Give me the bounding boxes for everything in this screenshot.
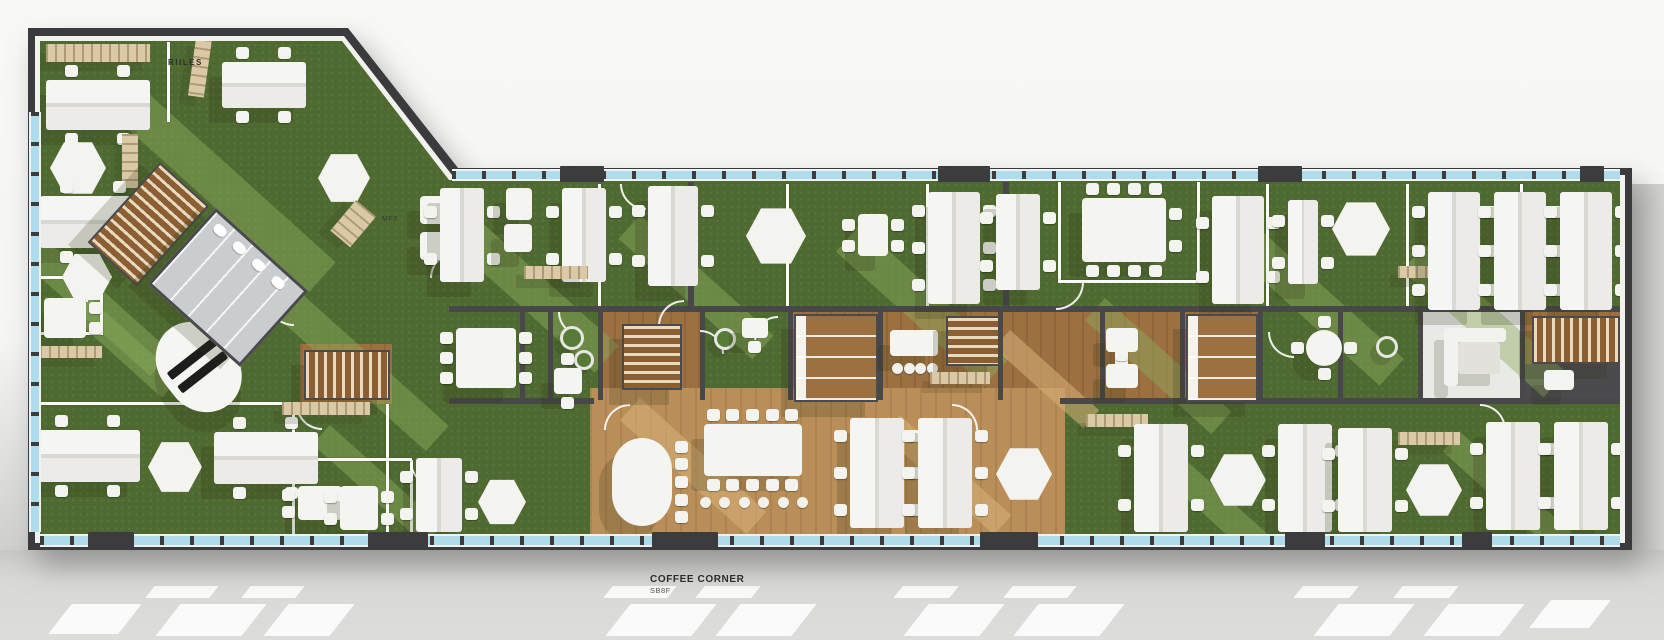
- side-table: [554, 368, 582, 394]
- chair: [983, 279, 996, 291]
- conference-table: [340, 486, 378, 530]
- chair: [675, 494, 688, 506]
- phone-booths: [1186, 314, 1258, 402]
- chair: [675, 458, 688, 470]
- chair: [1128, 183, 1141, 195]
- chair: [726, 409, 739, 421]
- chair: [233, 417, 246, 429]
- chair: [891, 240, 904, 252]
- chair: [487, 253, 500, 265]
- chair: [609, 206, 622, 218]
- storage-shelf: [122, 134, 138, 188]
- entry-door: [938, 166, 990, 182]
- chair: [1272, 257, 1285, 269]
- chair: [785, 479, 798, 491]
- desk-bench: [416, 458, 462, 532]
- toilet: [211, 222, 228, 239]
- chair: [1478, 284, 1491, 296]
- stool: [739, 497, 750, 508]
- chair: [1191, 445, 1204, 457]
- desk-bench: [648, 186, 698, 286]
- chair: [1149, 183, 1162, 195]
- desk-bench: [214, 432, 318, 484]
- chair: [746, 409, 759, 421]
- desk-bench: [1134, 424, 1188, 532]
- staircase: [622, 324, 682, 390]
- coffee-corner-title: COFFEE CORNER: [650, 574, 744, 585]
- chair: [1086, 183, 1099, 195]
- chair: [748, 341, 761, 353]
- stool: [892, 363, 903, 374]
- entry-door: [980, 532, 1038, 548]
- storage-shelf: [524, 266, 588, 279]
- chair: [55, 485, 68, 497]
- entry-door: [368, 532, 428, 548]
- chair: [1470, 443, 1483, 455]
- plant: [560, 326, 584, 350]
- chair: [912, 279, 925, 291]
- chair: [1318, 316, 1331, 328]
- oval-table: [612, 438, 672, 526]
- conference-table: [704, 424, 802, 476]
- chair: [1412, 284, 1425, 296]
- partition-wall: [1258, 310, 1263, 400]
- phone-booths: [794, 314, 878, 402]
- partition-wall: [548, 310, 553, 400]
- chair: [675, 441, 688, 453]
- round-table: [1306, 330, 1342, 366]
- staircase: [946, 316, 1000, 366]
- sofa-back: [1444, 328, 1458, 386]
- chair: [1412, 206, 1425, 218]
- entry-door: [560, 166, 604, 182]
- chair: [1538, 497, 1551, 509]
- chair: [233, 487, 246, 499]
- chair: [1478, 206, 1491, 218]
- desk-bench: [1494, 192, 1546, 310]
- chair: [902, 467, 915, 479]
- chair: [89, 322, 102, 334]
- chair: [1169, 240, 1182, 252]
- chair: [519, 332, 532, 344]
- chair: [1115, 349, 1128, 361]
- chair: [1470, 497, 1483, 509]
- chair: [1321, 257, 1334, 269]
- desk-bench: [46, 80, 150, 130]
- chair: [282, 506, 295, 518]
- chair: [983, 242, 996, 254]
- entry-door: [1462, 532, 1492, 548]
- chair: [675, 476, 688, 488]
- toilet: [269, 274, 286, 291]
- desk-bench: [1212, 196, 1264, 304]
- chair: [1191, 499, 1204, 511]
- desk-bench: [222, 62, 306, 108]
- chair: [285, 417, 298, 429]
- chair: [912, 242, 925, 254]
- conference-table: [1544, 370, 1574, 390]
- partition-wall: [1418, 310, 1423, 400]
- chair: [236, 47, 249, 59]
- chair: [561, 397, 574, 409]
- sofa-seat: [1458, 342, 1500, 374]
- chair: [1196, 271, 1209, 283]
- coffee-corner-label: COFFEE CORNER SB8F: [650, 574, 744, 595]
- desk-bench: [928, 192, 980, 304]
- side-table: [742, 318, 768, 338]
- room-label-b: MF3: [382, 216, 398, 223]
- chair: [1544, 245, 1557, 257]
- side-table: [506, 188, 532, 220]
- chair: [1107, 265, 1120, 277]
- chair: [561, 353, 574, 365]
- chair: [980, 212, 993, 224]
- stool: [719, 497, 730, 508]
- side-table: [44, 298, 86, 338]
- chair: [487, 206, 500, 218]
- chair: [278, 111, 291, 123]
- chair: [465, 471, 478, 483]
- chair: [746, 479, 759, 491]
- chair: [1538, 443, 1551, 455]
- desk-bench: [996, 194, 1040, 290]
- staircase: [304, 350, 390, 400]
- partition-wall: [700, 310, 705, 400]
- chair: [842, 240, 855, 252]
- conference-table: [1082, 198, 1166, 262]
- chair: [1344, 342, 1357, 354]
- entry-door: [1285, 532, 1325, 548]
- building: RIILES MF3: [0, 0, 1664, 640]
- coffee-corner-subtitle: SB8F: [650, 586, 744, 595]
- chair: [381, 491, 394, 503]
- chair: [1196, 217, 1209, 229]
- chair: [546, 206, 559, 218]
- storage-shelf: [930, 372, 990, 384]
- chair: [766, 409, 779, 421]
- chair: [1544, 284, 1557, 296]
- desk-bench: [1554, 422, 1608, 530]
- partition-wall: [1406, 184, 1409, 308]
- chair: [1118, 499, 1131, 511]
- chair: [632, 205, 645, 217]
- chair: [107, 485, 120, 497]
- side-table: [858, 214, 888, 256]
- stool: [915, 363, 926, 374]
- desk-bench: [440, 188, 484, 282]
- chair: [440, 372, 453, 384]
- room-label-a: RIILES: [168, 58, 203, 67]
- desk-bench: [850, 418, 904, 528]
- partition-wall: [1197, 182, 1200, 282]
- chair: [546, 253, 559, 265]
- chair: [1272, 215, 1285, 227]
- plant: [574, 350, 594, 370]
- side-table: [504, 224, 532, 252]
- chair: [1395, 448, 1408, 460]
- chair: [975, 467, 988, 479]
- entry-door: [1580, 166, 1604, 182]
- window-strip: [29, 112, 41, 532]
- desk-bench: [1278, 424, 1332, 532]
- chair: [1395, 500, 1408, 512]
- chair: [1043, 212, 1056, 224]
- chair: [834, 430, 847, 442]
- chair: [1149, 265, 1162, 277]
- desk-bench: [1338, 428, 1392, 532]
- partition-wall: [788, 310, 793, 400]
- storage-shelf: [1398, 432, 1460, 445]
- floor-plan-render: RIILES MF3 COFFEE CORNER SB8F: [0, 0, 1664, 640]
- plant: [1376, 336, 1398, 358]
- partition-wall: [40, 402, 292, 405]
- chair: [1086, 265, 1099, 277]
- chair: [89, 302, 102, 314]
- chair: [834, 467, 847, 479]
- chair: [834, 504, 847, 516]
- chair: [609, 253, 622, 265]
- stool: [758, 497, 769, 508]
- chair: [113, 181, 126, 193]
- chair: [60, 251, 73, 263]
- side-table: [1106, 364, 1138, 388]
- chair: [766, 479, 779, 491]
- chair: [1322, 448, 1335, 460]
- toilet: [231, 239, 248, 256]
- chair: [440, 332, 453, 344]
- entry-door: [1258, 166, 1302, 182]
- storage-shelf: [40, 346, 102, 358]
- chair: [1107, 183, 1120, 195]
- chair: [701, 255, 714, 267]
- chair: [107, 415, 120, 427]
- chair: [424, 253, 437, 265]
- chair: [236, 111, 249, 123]
- chair: [1291, 342, 1304, 354]
- partition-wall: [1058, 182, 1061, 282]
- chair: [1412, 245, 1425, 257]
- chair: [400, 508, 413, 520]
- storage-shelf: [282, 402, 370, 415]
- chair: [278, 47, 291, 59]
- desk-bench: [1428, 192, 1480, 310]
- chair: [675, 511, 688, 523]
- chair: [726, 479, 739, 491]
- chair: [1043, 260, 1056, 272]
- chair: [1478, 245, 1491, 257]
- chair: [1262, 499, 1275, 511]
- partition-wall: [1180, 310, 1185, 400]
- stool: [904, 363, 915, 374]
- partition-wall: [1266, 184, 1269, 308]
- partition-wall: [1100, 310, 1105, 400]
- chair: [975, 504, 988, 516]
- desk-bench: [1288, 200, 1318, 284]
- entry-door: [88, 532, 134, 548]
- desk-bench: [1486, 422, 1540, 530]
- staircase: [1532, 316, 1620, 364]
- chair: [440, 352, 453, 364]
- chair: [465, 508, 478, 520]
- chair: [891, 219, 904, 231]
- chair: [1544, 206, 1557, 218]
- chair: [1262, 445, 1275, 457]
- chair: [117, 65, 130, 77]
- partition-wall: [1520, 310, 1525, 400]
- entry-door: [652, 532, 718, 548]
- desk-bench: [1560, 192, 1612, 310]
- window-strip: [40, 534, 1620, 547]
- stool: [778, 497, 789, 508]
- desk-stripe: [177, 351, 228, 394]
- chair: [1169, 208, 1182, 220]
- chair: [980, 260, 993, 272]
- bar-stools: [700, 496, 808, 510]
- chair: [707, 479, 720, 491]
- chair: [632, 255, 645, 267]
- chair: [1118, 445, 1131, 457]
- chair: [912, 205, 925, 217]
- chair: [975, 430, 988, 442]
- chair: [1321, 215, 1334, 227]
- chair: [324, 491, 337, 503]
- chair: [324, 513, 337, 525]
- chair: [785, 409, 798, 421]
- chair: [400, 471, 413, 483]
- chair: [707, 409, 720, 421]
- storage-shelf: [46, 44, 150, 62]
- chair: [424, 206, 437, 218]
- chair: [60, 181, 73, 193]
- chair: [1322, 500, 1335, 512]
- chair: [902, 504, 915, 516]
- window-strip: [452, 169, 1620, 181]
- chair: [55, 415, 68, 427]
- conference-table: [890, 330, 938, 356]
- chair: [519, 352, 532, 364]
- partition-wall: [878, 310, 883, 400]
- chair: [381, 513, 394, 525]
- desk-bench: [918, 418, 972, 528]
- desk-bench: [36, 430, 140, 482]
- partition-wall: [167, 42, 170, 122]
- chair: [519, 372, 532, 384]
- lounge-sofa: [1444, 328, 1506, 386]
- chair: [1267, 271, 1280, 283]
- partition-wall: [598, 310, 603, 400]
- chair: [1318, 368, 1331, 380]
- conference-table: [456, 328, 516, 388]
- plant: [714, 328, 736, 350]
- chair: [701, 205, 714, 217]
- toilet: [250, 257, 267, 274]
- stool: [797, 497, 808, 508]
- chair: [902, 430, 915, 442]
- stool: [700, 497, 711, 508]
- chair: [282, 489, 295, 501]
- chair: [65, 65, 78, 77]
- chair: [1128, 265, 1141, 277]
- chair: [842, 219, 855, 231]
